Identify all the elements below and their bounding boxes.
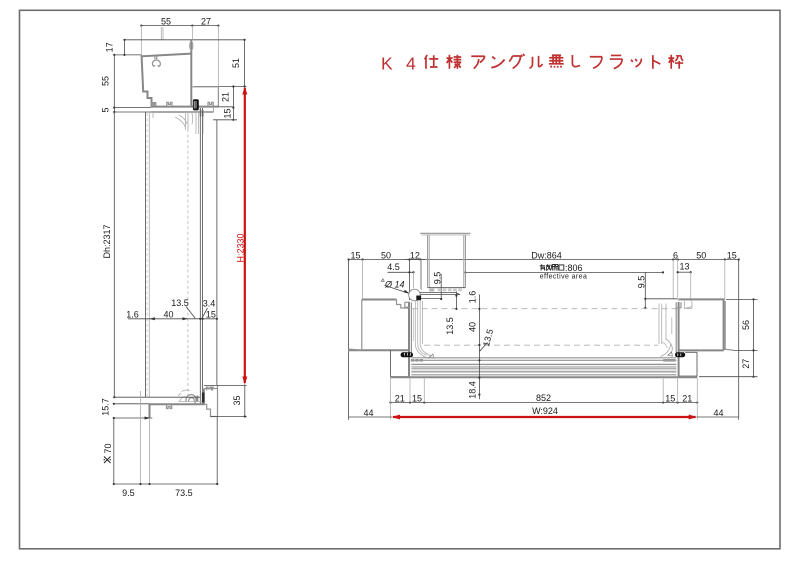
svg-text:9.5: 9.5: [432, 272, 442, 285]
svg-text:50: 50: [696, 250, 706, 260]
svg-text:15: 15: [350, 250, 360, 260]
svg-text:27: 27: [741, 359, 751, 369]
svg-text:Dw:864: Dw:864: [531, 250, 562, 260]
svg-text:5: 5: [101, 107, 111, 112]
svg-text:15: 15: [727, 250, 737, 260]
svg-text:6: 6: [673, 250, 678, 260]
svg-text:17: 17: [105, 42, 115, 52]
svg-text:13.5: 13.5: [445, 317, 455, 335]
svg-text:35: 35: [232, 395, 242, 405]
svg-text:55: 55: [101, 76, 111, 86]
svg-text:40: 40: [468, 322, 478, 332]
svg-text:K: K: [381, 54, 393, 74]
svg-text:4.5: 4.5: [387, 262, 400, 272]
svg-text:Ø 14: Ø 14: [384, 280, 405, 290]
svg-text:50: 50: [381, 250, 391, 260]
svg-text:18.4: 18.4: [468, 381, 478, 399]
svg-text:73.5: 73.5: [175, 488, 193, 498]
svg-text:44: 44: [363, 408, 373, 418]
svg-text:15: 15: [665, 393, 675, 403]
svg-text:27: 27: [201, 16, 211, 26]
svg-text:21: 21: [221, 92, 231, 102]
svg-text:1.6: 1.6: [468, 291, 478, 304]
svg-text:9.5: 9.5: [637, 276, 647, 289]
svg-text:15: 15: [222, 108, 232, 118]
svg-text:effective area: effective area: [540, 274, 588, 281]
svg-text:W:924: W:924: [532, 406, 558, 416]
svg-text:15: 15: [412, 393, 422, 403]
svg-text:70: 70: [103, 443, 113, 453]
svg-text:21: 21: [682, 393, 692, 403]
svg-text:21: 21: [395, 393, 405, 403]
svg-text:55: 55: [161, 16, 171, 26]
svg-text:1.6: 1.6: [126, 310, 139, 320]
svg-text:56: 56: [741, 320, 751, 330]
svg-text:40: 40: [163, 310, 173, 320]
svg-text:H:2330: H:2330: [236, 233, 246, 262]
svg-text:15: 15: [206, 310, 216, 320]
svg-text:12: 12: [410, 250, 420, 260]
svg-text:13.5: 13.5: [171, 298, 189, 308]
svg-text:51: 51: [231, 58, 241, 68]
svg-text:Dh:2317: Dh:2317: [102, 224, 112, 258]
svg-text:44: 44: [713, 408, 723, 418]
svg-text:852: 852: [536, 393, 551, 403]
svg-text::806: :806: [565, 263, 583, 273]
svg-text:13: 13: [679, 262, 689, 272]
svg-text:9.5: 9.5: [122, 488, 135, 498]
svg-text:4: 4: [406, 54, 416, 74]
svg-text:3.4: 3.4: [203, 299, 216, 309]
svg-text:15.7: 15.7: [101, 398, 111, 416]
